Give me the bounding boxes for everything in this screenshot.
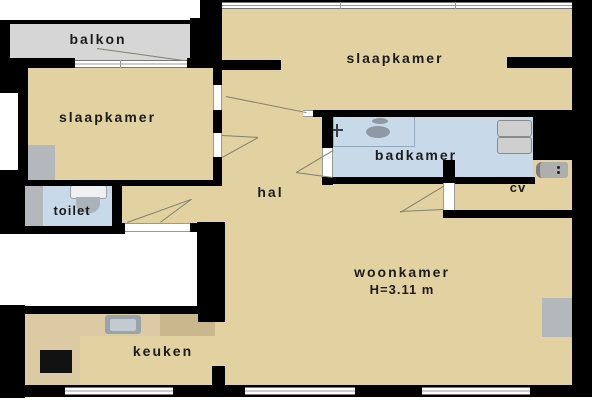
kitchen-sink-basin bbox=[110, 319, 136, 331]
floor-plan: balkon slaapkamer slaapkamer badkamer to… bbox=[0, 0, 600, 400]
shower-head-small bbox=[372, 118, 388, 124]
label-cv: cv bbox=[494, 181, 542, 194]
door-gap-upper bbox=[213, 85, 222, 110]
wall-toilet-bottom bbox=[0, 226, 125, 234]
label-woonkamer-height: H=3.11 m bbox=[332, 283, 472, 296]
label-hal: hal bbox=[243, 185, 298, 199]
wall-stairwell-right bbox=[197, 222, 225, 310]
shower-tap-bar-icon bbox=[333, 129, 343, 131]
wall-right bbox=[572, 0, 592, 397]
wall-balkon-left bbox=[0, 20, 10, 62]
wall-keuken-top bbox=[25, 306, 225, 314]
door-gap-slaapkamer-left bbox=[213, 133, 222, 157]
wall-cv-bottom bbox=[443, 210, 572, 218]
washer-unit-bottom bbox=[497, 137, 532, 154]
wall-balkon-bottom-right bbox=[187, 58, 190, 68]
label-badkamer: badkamer bbox=[352, 148, 480, 162]
label-woonkamer: woonkamer bbox=[332, 265, 472, 279]
door-gap-cv bbox=[443, 183, 455, 210]
door-gap-front-entry bbox=[125, 223, 190, 232]
window-woonkamer-1 bbox=[245, 387, 355, 395]
window-slaapkamer-right-top bbox=[222, 2, 572, 9]
window-tick bbox=[340, 2, 341, 9]
window-tick bbox=[120, 60, 121, 68]
label-slaapkamer-left: slaapkamer bbox=[40, 110, 175, 124]
balkon-sliding-door bbox=[75, 60, 187, 68]
wall-balkon-top bbox=[0, 20, 190, 24]
wall-shaft bbox=[533, 110, 572, 160]
wall-slaapkamer-right-bottom bbox=[313, 110, 533, 117]
window-keuken bbox=[65, 387, 173, 395]
label-balkon: balkon bbox=[52, 32, 144, 46]
cv-boiler-dots bbox=[557, 166, 560, 169]
wall-stub-right bbox=[507, 57, 572, 68]
shower-head-large bbox=[366, 126, 390, 138]
room-woonkamer-floor bbox=[225, 215, 572, 390]
radiator bbox=[542, 298, 572, 337]
window-tick bbox=[455, 2, 456, 9]
wall-top-corner bbox=[200, 0, 222, 20]
wall-keuken-left bbox=[0, 305, 25, 398]
wall-stub-left bbox=[213, 60, 281, 70]
cv-boiler bbox=[536, 162, 568, 178]
wall-toilet-left bbox=[0, 170, 25, 234]
wall-left-corner bbox=[0, 58, 28, 93]
label-toilet: toilet bbox=[36, 204, 108, 217]
wall-keuken-top-corner bbox=[198, 306, 225, 322]
wardrobe bbox=[28, 145, 55, 180]
window-woonkamer-2 bbox=[422, 387, 530, 395]
washer-unit-top bbox=[497, 120, 532, 137]
kitchen-sink bbox=[105, 315, 141, 334]
stove bbox=[40, 350, 72, 373]
label-slaapkamer-right: slaapkamer bbox=[325, 51, 465, 65]
wall-keuken-woonkamer-stub bbox=[212, 366, 225, 386]
label-keuken: keuken bbox=[108, 344, 218, 358]
